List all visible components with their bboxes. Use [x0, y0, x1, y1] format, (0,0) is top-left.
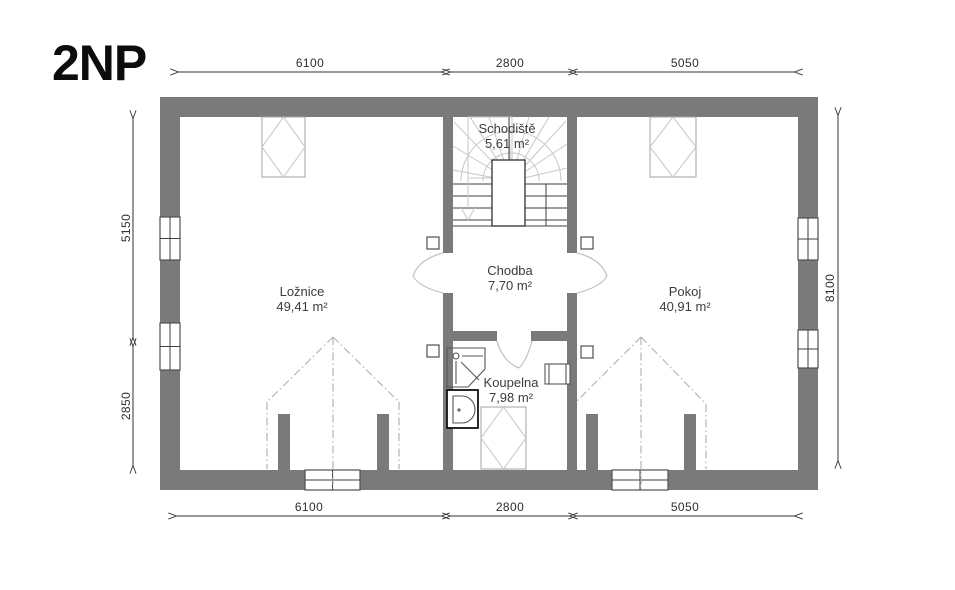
dim-label-left-1: 5150: [119, 214, 133, 242]
door-swing: [577, 253, 607, 293]
column: [581, 237, 593, 249]
skylight: [650, 117, 696, 177]
washbasin: [447, 390, 478, 428]
window: [612, 470, 668, 490]
skylight: [481, 407, 526, 469]
room-area: 7,70 m²: [487, 278, 533, 293]
room-name: Pokoj: [659, 284, 710, 299]
dim-label-bottom-1: 6100: [295, 500, 323, 514]
column: [427, 237, 439, 249]
dim-label-top-1: 6100: [296, 56, 324, 70]
window: [160, 323, 180, 370]
room-name: Ložnice: [276, 284, 327, 299]
room-label-koupelna: Koupelna 7,98 m²: [484, 375, 539, 405]
room-name: Chodba: [487, 263, 533, 278]
room-area: 7,98 m²: [484, 390, 539, 405]
columns: [427, 237, 593, 358]
dormer-outline: [267, 337, 706, 489]
window: [160, 217, 180, 260]
column: [427, 345, 439, 357]
room-area: 40,91 m²: [659, 299, 710, 314]
door-swing: [497, 341, 532, 368]
window: [798, 218, 818, 260]
column: [581, 346, 593, 358]
room-area: 49,41 m²: [276, 299, 327, 314]
floor-plan: 2NP: [0, 0, 955, 590]
dim-label-left-2: 2850: [119, 392, 133, 420]
door-swing: [413, 253, 443, 293]
shower: [447, 348, 485, 387]
dim-label-top-2: 2800: [496, 56, 524, 70]
skylight: [262, 117, 305, 177]
dim-label-top-3: 5050: [671, 56, 699, 70]
dim-label-right-1: 8100: [823, 274, 837, 302]
plan-linework: [0, 0, 955, 590]
dim-label-bottom-2: 2800: [496, 500, 524, 514]
room-area: 5,61 m²: [478, 136, 535, 151]
toilet: [545, 364, 570, 384]
room-label-schodiste: Schodiště 5,61 m²: [478, 121, 535, 151]
window: [798, 330, 818, 368]
room-label-loznice: Ložnice 49,41 m²: [276, 284, 327, 314]
dim-label-bottom-3: 5050: [671, 500, 699, 514]
room-name: Schodiště: [478, 121, 535, 136]
room-label-chodba: Chodba 7,70 m²: [487, 263, 533, 293]
room-name: Koupelna: [484, 375, 539, 390]
room-label-pokoj: Pokoj 40,91 m²: [659, 284, 710, 314]
